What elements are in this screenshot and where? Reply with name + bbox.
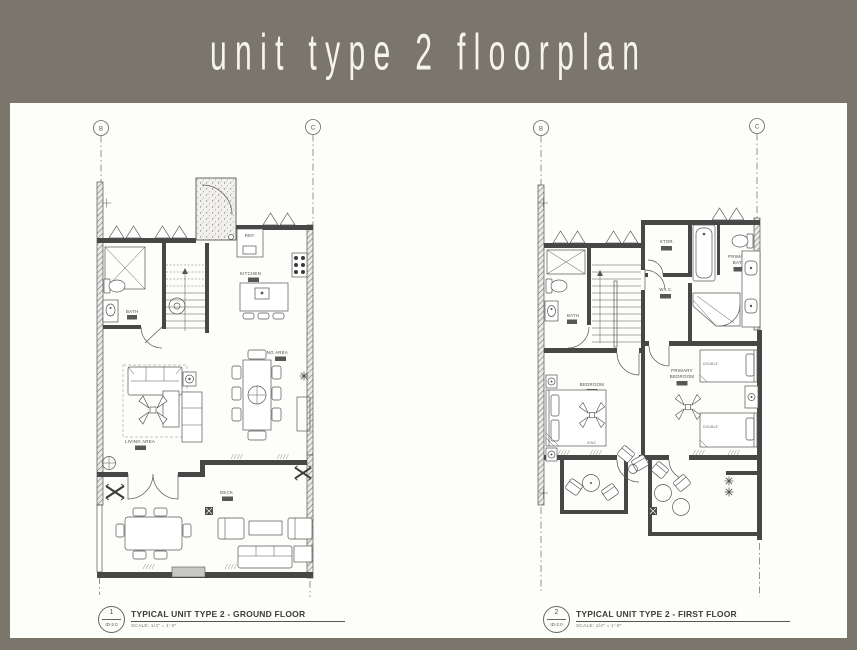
- ground-floor-caption: 1 ID-2.0 TYPICAL UNIT TYPE 2 - GROUND FL…: [98, 606, 345, 633]
- door-swing: [617, 353, 639, 375]
- toilet-icon: [104, 279, 125, 293]
- window-icon: [606, 231, 638, 243]
- coffee-table: [163, 391, 179, 427]
- kitchen-label: KITCHEN: [240, 271, 261, 276]
- vanity: [545, 301, 558, 321]
- door-swing: [141, 327, 162, 348]
- french-doors: [128, 474, 178, 499]
- dining-area: DINING AREA: [232, 350, 310, 440]
- plan-title: TYPICAL UNIT TYPE 2 - GROUND FLOOR: [131, 609, 345, 622]
- armchair: [601, 483, 619, 501]
- round-table: [673, 499, 690, 516]
- stairs: [166, 265, 205, 331]
- sheet-number: ID-2.0: [544, 620, 569, 630]
- drawing-paper: B C: [10, 103, 847, 638]
- primary-bedroom-label: PRIMARY: [671, 368, 693, 373]
- stairs: [592, 265, 641, 347]
- ground-floor-plan: B C: [85, 115, 335, 600]
- chair: [272, 387, 281, 400]
- deck-label: DECK: [220, 490, 233, 495]
- door-swing: [568, 327, 589, 348]
- room-tag: [660, 294, 671, 299]
- room-tag: [275, 357, 286, 362]
- living-area: LIVING AREA: [123, 365, 202, 450]
- double-bed: [700, 350, 757, 382]
- plan-scale: SCALE: 1/4" = 1'-0": [576, 624, 790, 629]
- double-vanity: [742, 251, 760, 327]
- grid-bubble-c: C: [311, 126, 316, 132]
- stor-label: STOR.: [660, 239, 675, 244]
- water-heater: [169, 298, 185, 314]
- chair: [133, 508, 146, 516]
- lounge-chair: [288, 518, 312, 539]
- bath-label: BATH: [126, 309, 138, 314]
- door-swing: [649, 346, 669, 366]
- storage-room: STOR.: [648, 239, 674, 275]
- bathroom: BATH: [103, 247, 185, 348]
- sheet-number: ID-2.0: [99, 620, 124, 630]
- condenser-icon: [725, 488, 734, 497]
- armchair: [565, 478, 583, 496]
- chair: [133, 551, 146, 559]
- bath-label: BATH: [567, 313, 579, 318]
- floorplan-sheet: unit type 2 floorplan: [0, 0, 857, 650]
- double-size-label: DOUBLE: [703, 362, 719, 366]
- round-table: [655, 485, 672, 502]
- detail-bubble: 1 ID-2.0: [98, 606, 125, 633]
- room-tag: [248, 278, 259, 283]
- bedroom-label: BEDROOM: [580, 382, 605, 387]
- side-table: [294, 546, 312, 562]
- room-tag: [222, 497, 233, 502]
- vanity: [103, 300, 118, 322]
- outdoor-table: [125, 517, 182, 550]
- armchair: [651, 461, 669, 479]
- room-tag: [677, 381, 688, 386]
- toilet-icon: [546, 279, 567, 293]
- island: [240, 283, 288, 311]
- chair: [248, 350, 266, 359]
- chair: [232, 408, 241, 421]
- room-tag: [567, 320, 577, 325]
- chair: [272, 366, 281, 379]
- wic-label: W.I.C.: [659, 287, 672, 292]
- living-label: LIVING AREA: [125, 439, 155, 444]
- grid-bubble-b: B: [99, 127, 103, 133]
- chair: [232, 387, 241, 400]
- window-icon: [155, 226, 187, 238]
- chair: [154, 508, 167, 516]
- condenser-icon: [725, 477, 734, 486]
- grid-markers: B C: [534, 119, 765, 219]
- chair: [248, 431, 266, 440]
- kitchen: REF. KITCHEN: [237, 229, 307, 319]
- room-tag: [135, 446, 146, 451]
- stool: [243, 313, 254, 319]
- hall-bath: BATH: [545, 250, 589, 348]
- window-icon: [712, 208, 744, 220]
- plan-scale: SCALE: 1/4" = 1'-0": [131, 624, 345, 629]
- armchair: [673, 474, 691, 492]
- first-floor-caption: 2 ID-2.0 TYPICAL UNIT TYPE 2 - FIRST FLO…: [543, 606, 790, 633]
- room-tag: [661, 246, 672, 251]
- lounge-chair: [218, 518, 244, 539]
- toilet-icon: [732, 234, 753, 248]
- detail-number: 2: [547, 607, 566, 620]
- chair: [183, 524, 191, 537]
- window-icon: [263, 213, 295, 225]
- double-size-label2: DOUBLE: [703, 425, 719, 429]
- detail-number: 1: [102, 607, 121, 620]
- first-floor-plan: B C: [530, 115, 780, 600]
- page-title: unit type 2 floorplan: [210, 22, 647, 81]
- primary-bedroom-label2: BEDROOM: [670, 374, 695, 379]
- condenser-icon: [300, 372, 309, 381]
- tv-console: [182, 392, 202, 442]
- king-size-label: KING: [587, 441, 596, 445]
- chair: [116, 524, 124, 537]
- window-icon: [553, 231, 585, 243]
- primary-bedroom: PRIMARY BEDROOM DOUBLE DOUBLE: [670, 350, 758, 447]
- x-mark-icon: [106, 484, 124, 500]
- chair: [232, 366, 241, 379]
- plan-title: TYPICAL UNIT TYPE 2 - FIRST FLOOR: [576, 609, 790, 622]
- outdoor-low-table: [249, 521, 282, 535]
- grid-bubble-c: C: [755, 125, 760, 131]
- detail-bubble: 2 ID-2.0: [543, 606, 570, 633]
- ceiling-fan-icon: [675, 394, 700, 419]
- outdoor-sofa: [238, 546, 292, 568]
- window-icon: [109, 226, 141, 238]
- room-tag: [127, 315, 137, 320]
- stool: [258, 313, 269, 319]
- deck-step: [172, 567, 205, 577]
- stool: [273, 313, 284, 319]
- chair: [154, 551, 167, 559]
- chimney-block: [196, 178, 236, 240]
- grid-bubble-b: B: [539, 127, 543, 133]
- header-banner: unit type 2 floorplan: [0, 0, 857, 103]
- ref-label: REF.: [245, 233, 256, 238]
- chair: [272, 408, 281, 421]
